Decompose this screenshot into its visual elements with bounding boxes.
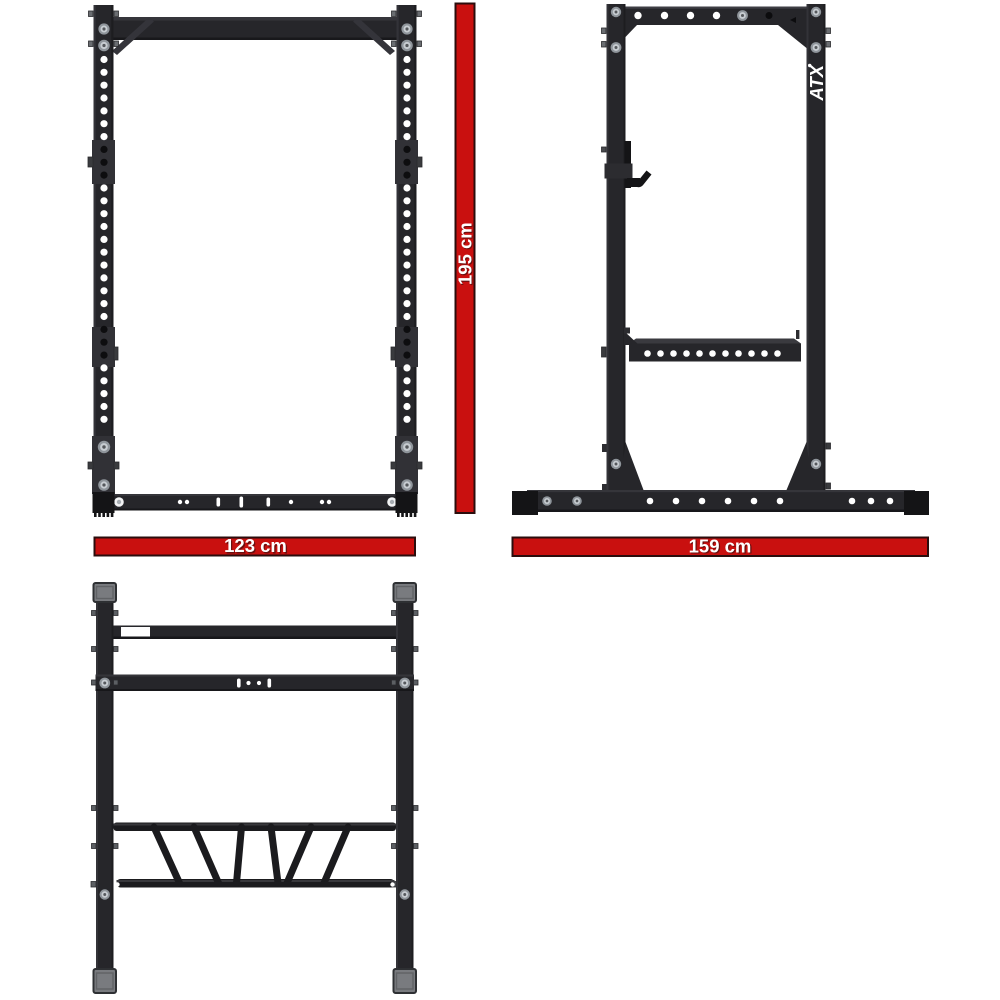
svg-text:159 cm: 159 cm xyxy=(689,535,752,556)
svg-text:195 cm: 195 cm xyxy=(455,222,476,285)
svg-text:ATX: ATX xyxy=(806,63,827,101)
svg-text:123 cm: 123 cm xyxy=(224,535,287,556)
